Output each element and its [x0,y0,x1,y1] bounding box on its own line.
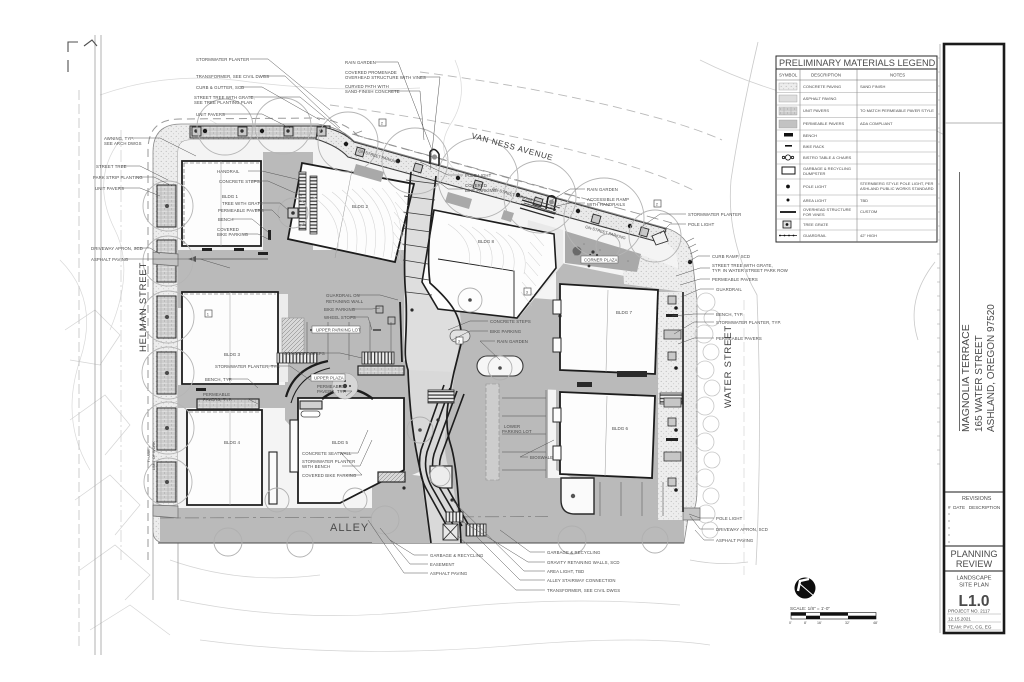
svg-text:EASEMENT: EASEMENT [430,562,455,567]
svg-text:RAIN GARDEN: RAIN GARDEN [587,187,618,192]
svg-text:GUARDRAIL: GUARDRAIL [803,233,827,238]
svg-text:SYMBOL: SYMBOL [779,73,798,78]
svg-text:# DATE DESCRIPTION: # DATE DESCRIPTION [948,505,1000,510]
svg-text:WITH HANDRAILS: WITH HANDRAILS [587,202,625,207]
svg-text:CUSTOM: CUSTOM [860,209,877,214]
svg-text:SAND FINISH: SAND FINISH [860,84,885,89]
svg-text:RAIN GARDEN: RAIN GARDEN [497,339,528,344]
svg-text:BLDG 5: BLDG 5 [332,440,349,445]
svg-text:LANDSCAPE: LANDSCAPE [956,576,991,582]
svg-text:HANDRAIL: HANDRAIL [217,169,240,174]
svg-text:CONCRETE STEPS: CONCRETE STEPS [219,179,260,184]
svg-text:CONCRETE STEPS: CONCRETE STEPS [490,319,531,324]
svg-text:HELMAN STREET: HELMAN STREET [138,262,149,352]
svg-text:BIKE PARKING: BIKE PARKING [217,232,249,237]
svg-text:ASPHALT PAVING: ASPHALT PAVING [803,96,837,101]
svg-text:PERMEABLE PAVERS: PERMEABLE PAVERS [218,208,264,213]
svg-text:SCALE: 1/8" = 1'-0": SCALE: 1/8" = 1'-0" [790,606,830,611]
svg-text:TREE WITH GRATE: TREE WITH GRATE [222,201,263,206]
svg-text:PARK STRIP PLANTING: PARK STRIP PLANTING [93,175,143,180]
svg-text:PRELIMINARY MATERIALS LEGEND: PRELIMINARY MATERIALS LEGEND [779,58,936,68]
svg-text:BENCH: BENCH [218,217,234,222]
svg-text:SEE TREE PLANTING PLAN: SEE TREE PLANTING PLAN [194,100,252,105]
svg-text:BLDG 3: BLDG 3 [224,352,241,357]
svg-text:POLE LIGHT: POLE LIGHT [688,222,715,227]
svg-text:BLDG 6: BLDG 6 [612,426,629,431]
svg-text:UPPER PLAZA: UPPER PLAZA [314,376,344,381]
svg-text:FOR VINES: FOR VINES [803,212,825,217]
svg-text:UNIT PAVERS: UNIT PAVERS [95,186,124,191]
svg-text:UNIT PAVERS: UNIT PAVERS [196,112,225,117]
svg-text:ASPHALT PAVING: ASPHALT PAVING [91,257,129,262]
svg-text:DRIVEWAY APRON, SCD: DRIVEWAY APRON, SCD [91,246,143,251]
svg-text:STREET TREE: STREET TREE [96,164,127,169]
svg-text:LIMIT OF WORK: LIMIT OF WORK [152,441,156,470]
svg-text:STORMWATER PLANTER, TYP.: STORMWATER PLANTER, TYP. [215,364,280,369]
svg-text:STORMWATER PLANTER: STORMWATER PLANTER [196,57,249,62]
svg-text:CONCRETE STEPS: CONCRETE STEPS [284,351,325,356]
svg-text:WHEEL STOPS: WHEEL STOPS [324,315,356,320]
svg-text:BIOSWALE: BIOSWALE [530,455,553,460]
svg-text:BENCH, TYP.: BENCH, TYP. [205,377,232,382]
svg-text:CORNER PLAZA: CORNER PLAZA [584,258,618,263]
svg-text:BIKE PARKING: BIKE PARKING [465,188,497,193]
svg-text:UNIT PAVERS: UNIT PAVERS [803,108,829,113]
svg-text:GARBAGE & RECYCLING: GARBAGE & RECYCLING [547,550,601,555]
svg-text:PHASE 1: PHASE 1 [147,446,151,462]
svg-text:0': 0' [789,621,792,625]
svg-text:42" HIGH: 42" HIGH [860,233,877,238]
svg-text:12.15.2021: 12.15.2021 [948,617,971,622]
svg-text:ASPHALT PAVING: ASPHALT PAVING [430,571,468,576]
svg-text:ASHLAND, OREGON 97520: ASHLAND, OREGON 97520 [986,304,997,432]
svg-text:DRIVEWAY APRON, SCD: DRIVEWAY APRON, SCD [716,527,768,532]
svg-text:TRANSFORMER, SEE CIVIL DWGS: TRANSFORMER, SEE CIVIL DWGS [196,74,269,79]
svg-text:L1.0: L1.0 [958,593,989,610]
svg-text:RETAINING WALL: RETAINING WALL [326,299,364,304]
svg-text:ASPHALT PAVING: ASPHALT PAVING [716,538,754,543]
svg-text:GARBAGE & RECYCLING: GARBAGE & RECYCLING [430,553,484,558]
svg-text:BLDG 1: BLDG 1 [222,194,239,199]
svg-text:BLDG 4: BLDG 4 [224,440,241,445]
svg-text:BIKE PARKING: BIKE PARKING [490,329,522,334]
svg-text:PARKING LOT: PARKING LOT [502,429,532,434]
svg-text:TO MATCH PERMEABLE PAVER STYLE: TO MATCH PERMEABLE PAVER STYLE [860,108,934,113]
svg-text:8': 8' [804,621,807,625]
svg-text:16': 16' [817,621,822,625]
svg-text:BISTRO TABLE & CHAIRS: BISTRO TABLE & CHAIRS [803,155,852,160]
svg-text:PERMEABLE PAVERS: PERMEABLE PAVERS [712,277,758,282]
svg-text:PERMEABLE PAVERS: PERMEABLE PAVERS [716,336,762,341]
svg-text:32': 32' [845,621,850,625]
svg-text:PERMEABLE PAVERS: PERMEABLE PAVERS [803,121,845,126]
svg-text:CONCRETE PAVING: CONCRETE PAVING [803,84,841,89]
svg-text:165 WATER STREET: 165 WATER STREET [974,335,985,432]
svg-text:AREA LIGHT, TBD: AREA LIGHT, TBD [547,569,584,574]
svg-text:BIKE PARKING: BIKE PARKING [324,307,356,312]
svg-text:REVIEW: REVIEW [956,559,993,569]
svg-text:POLE LIGHT: POLE LIGHT [465,173,492,178]
svg-text:AREA LIGHT: AREA LIGHT [803,198,827,203]
svg-text:PAVERS, TYP.: PAVERS, TYP. [317,389,346,394]
svg-text:RAIN GARDEN: RAIN GARDEN [345,60,376,65]
svg-text:BLDG 2: BLDG 2 [352,204,369,209]
svg-text:MAGNOLIA TERRACE: MAGNOLIA TERRACE [960,324,972,432]
svg-text:POLE LIGHT: POLE LIGHT [803,184,827,189]
svg-text:48': 48' [873,621,878,625]
svg-text:SITE PLAN: SITE PLAN [959,583,989,589]
svg-text:OVERHEAD STRUCTURE WITH VINES: OVERHEAD STRUCTURE WITH VINES [345,75,426,80]
svg-text:WITH BENCH: WITH BENCH [302,464,330,469]
svg-text:TRANSFORMER, SEE CIVIL DWGS: TRANSFORMER, SEE CIVIL DWGS [547,588,620,593]
svg-text:ASHLAND PUBLIC WORKS STANDARD: ASHLAND PUBLIC WORKS STANDARD [860,186,934,191]
svg-text:BLDG 7: BLDG 7 [616,310,633,315]
svg-text:CURB & GUTTER, SCD: CURB & GUTTER, SCD [196,85,244,90]
svg-text:POLE LIGHT: POLE LIGHT [716,516,743,521]
svg-text:PAVERS, TYP.: PAVERS, TYP. [203,397,232,402]
svg-text:DESCRIPTION: DESCRIPTION [811,73,841,78]
svg-text:REVISIONS: REVISIONS [962,496,992,502]
svg-text:UPPER PARKING LOT: UPPER PARKING LOT [316,328,361,333]
svg-text:ALLEY: ALLEY [330,522,369,534]
svg-text:PLANNING: PLANNING [951,549,998,559]
svg-text:GRAVITY RETAINING WALLS, SCD: GRAVITY RETAINING WALLS, SCD [547,560,620,565]
svg-text:TEAM: PVC, CG, EG: TEAM: PVC, CG, EG [948,625,992,630]
svg-text:BENCH, TYP.: BENCH, TYP. [716,312,743,317]
svg-text:GUARDRAIL: GUARDRAIL [716,287,742,292]
svg-text:NOTES: NOTES [890,73,905,78]
svg-text:CURB RAMP, SCD: CURB RAMP, SCD [712,254,750,259]
svg-text:GUARDRAIL ON: GUARDRAIL ON [326,293,360,298]
svg-text:STORMWATER PLANTER: STORMWATER PLANTER [688,212,741,217]
svg-text:PROJECT NO. 2117: PROJECT NO. 2117 [948,609,990,614]
svg-text:SAND-FINISH CONCRETE: SAND-FINISH CONCRETE [345,89,400,94]
svg-text:TYP. IN WATER STREET PARK ROW: TYP. IN WATER STREET PARK ROW [712,268,789,273]
svg-text:TBD: TBD [860,198,868,203]
svg-text:BIKE RACK: BIKE RACK [803,144,825,149]
svg-text:CONCRETE SEATWALL: CONCRETE SEATWALL [302,451,352,456]
svg-text:TREE GRATE: TREE GRATE [803,222,829,227]
svg-text:BLDG 8: BLDG 8 [478,239,495,244]
svg-text:COVERED BIKE PARKING: COVERED BIKE PARKING [302,473,357,478]
svg-text:SEE ARCH DWGS: SEE ARCH DWGS [104,141,142,146]
svg-text:ALLEY STAIRWAY CONNECTION: ALLEY STAIRWAY CONNECTION [547,578,616,583]
svg-text:DUMPSTER: DUMPSTER [803,171,826,176]
svg-text:STORMWATER PLANTER, TYP.: STORMWATER PLANTER, TYP. [716,320,781,325]
svg-text:ADA COMPLIANT: ADA COMPLIANT [860,121,893,126]
svg-text:BENCH: BENCH [803,133,817,138]
